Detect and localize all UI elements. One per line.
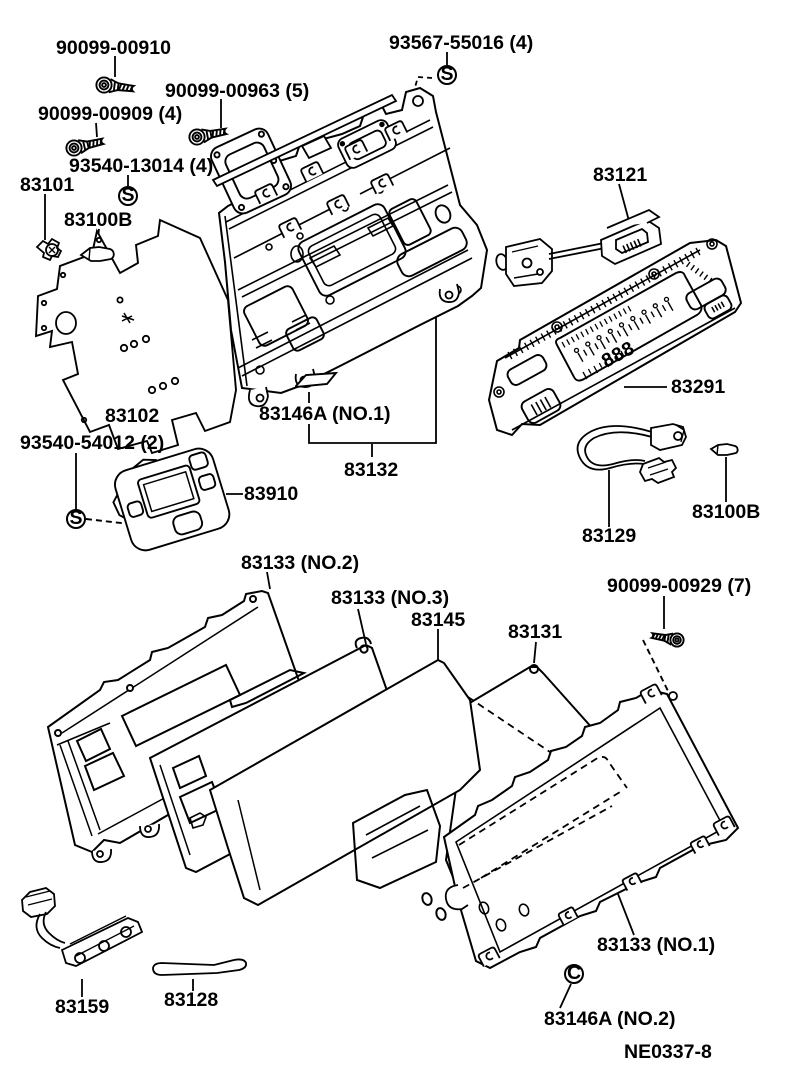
svg-text:90099-00963 (5): 90099-00963 (5) bbox=[165, 80, 309, 102]
svg-text:83100B: 83100B bbox=[692, 501, 760, 523]
svg-text:93567-55016 (4): 93567-55016 (4) bbox=[389, 32, 533, 54]
svg-text:83121: 83121 bbox=[593, 164, 647, 186]
svg-text:90099-00929 (7): 90099-00929 (7) bbox=[607, 575, 751, 597]
svg-text:83102: 83102 bbox=[105, 405, 159, 427]
svg-text:S: S bbox=[121, 184, 134, 206]
svg-text:S: S bbox=[69, 507, 82, 529]
svg-text:93540-13014 (4): 93540-13014 (4) bbox=[69, 155, 213, 177]
svg-text:83291: 83291 bbox=[671, 376, 725, 398]
svg-text:93540-54012 (2): 93540-54012 (2) bbox=[20, 432, 164, 454]
svg-text:83133 (NO.2): 83133 (NO.2) bbox=[241, 552, 359, 574]
svg-text:83145: 83145 bbox=[411, 609, 465, 631]
svg-text:S: S bbox=[440, 63, 453, 85]
svg-text:83128: 83128 bbox=[164, 989, 218, 1011]
svg-text:83146A (NO.1): 83146A (NO.1) bbox=[259, 403, 391, 425]
svg-text:83129: 83129 bbox=[582, 525, 636, 547]
svg-text:83159: 83159 bbox=[55, 996, 109, 1018]
svg-text:83101: 83101 bbox=[20, 174, 74, 196]
svg-text:83132: 83132 bbox=[344, 459, 398, 481]
svg-text:83131: 83131 bbox=[508, 621, 562, 643]
svg-text:83146A (NO.2): 83146A (NO.2) bbox=[544, 1008, 676, 1030]
svg-text:90099-00910: 90099-00910 bbox=[56, 37, 171, 59]
svg-text:NE0337-8: NE0337-8 bbox=[624, 1041, 712, 1063]
svg-text:83133 (NO.3): 83133 (NO.3) bbox=[331, 587, 449, 609]
svg-text:90099-00909 (4): 90099-00909 (4) bbox=[38, 103, 182, 125]
svg-text:83910: 83910 bbox=[244, 483, 298, 505]
svg-text:83100B: 83100B bbox=[64, 209, 132, 231]
svg-text:C: C bbox=[567, 962, 581, 984]
svg-text:83133 (NO.1): 83133 (NO.1) bbox=[597, 934, 715, 956]
